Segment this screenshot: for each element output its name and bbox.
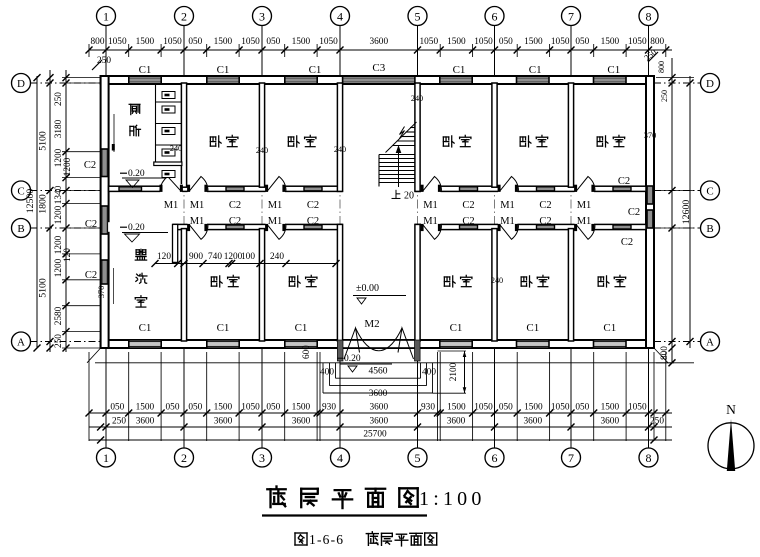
svg-text:050: 050 [266,37,280,47]
svg-text:C2: C2 [628,207,640,218]
svg-text:C2: C2 [85,270,97,281]
svg-text:1500: 1500 [601,403,620,413]
svg-text:1500: 1500 [447,403,466,413]
svg-text:1050: 1050 [628,403,647,413]
svg-text:5: 5 [415,451,421,465]
svg-text:C2: C2 [539,216,551,227]
svg-text:1500: 1500 [292,403,311,413]
svg-text:12500: 12500 [25,189,36,214]
svg-text:1050: 1050 [474,37,493,47]
svg-text:3600: 3600 [524,417,543,427]
svg-text:4: 4 [337,9,343,23]
svg-text:800: 800 [91,37,105,47]
svg-text:240: 240 [334,145,346,154]
svg-text:1-6-6: 1-6-6 [309,532,344,547]
svg-text:4560: 4560 [369,367,388,377]
svg-text:120: 120 [157,252,171,262]
svg-text:930: 930 [421,403,435,413]
svg-text:C1: C1 [453,64,466,76]
svg-text:1500: 1500 [214,37,233,47]
svg-text:240: 240 [270,252,284,262]
svg-text:800: 800 [650,37,664,47]
svg-text:C2: C2 [462,216,474,227]
svg-text:7: 7 [568,9,574,23]
svg-text:050: 050 [188,37,202,47]
svg-text:M1: M1 [164,200,179,211]
svg-text:C2: C2 [462,200,474,211]
svg-text:050: 050 [575,37,589,47]
svg-text:1050: 1050 [551,37,570,47]
svg-text:C2: C2 [229,200,241,211]
svg-text:7: 7 [568,451,574,465]
svg-text:3600: 3600 [369,389,388,399]
svg-text:C2: C2 [539,200,551,211]
svg-text:100: 100 [241,252,255,262]
svg-text:B: B [706,223,713,235]
svg-text:0.20: 0.20 [128,169,145,179]
svg-text:800: 800 [657,61,666,73]
svg-text:1500: 1500 [524,37,543,47]
svg-text:C1: C1 [603,322,616,334]
svg-text:C2: C2 [84,160,96,171]
svg-text:050: 050 [499,403,513,413]
svg-text:050: 050 [266,403,280,413]
svg-text:1050: 1050 [319,37,338,47]
svg-text:D: D [17,78,25,90]
svg-text:3600: 3600 [292,417,311,427]
svg-text:3600: 3600 [214,417,233,427]
svg-text:1050: 1050 [628,37,647,47]
svg-text:1: 1 [103,9,109,23]
svg-text:370: 370 [97,286,106,299]
svg-text:1:100: 1:100 [419,488,486,510]
svg-text:900: 900 [189,252,203,262]
svg-text:C: C [706,186,713,198]
svg-text:8: 8 [646,451,652,465]
svg-text:240: 240 [170,144,182,153]
svg-text:800: 800 [660,346,670,360]
svg-text:3: 3 [259,451,265,465]
svg-text:1500: 1500 [214,403,233,413]
svg-text:240: 240 [411,94,423,103]
svg-text:C1: C1 [309,64,322,76]
svg-text:1: 1 [103,451,109,465]
svg-text:8: 8 [646,9,652,23]
svg-text:1200: 1200 [54,205,64,224]
svg-text:M1: M1 [577,216,592,227]
svg-text:M1: M1 [190,216,205,227]
svg-text:250: 250 [112,417,126,427]
svg-text:M1: M1 [500,216,515,227]
svg-text:C2: C2 [229,216,241,227]
svg-text:M1: M1 [500,200,515,211]
svg-text:4: 4 [337,451,343,465]
svg-text:3: 3 [259,9,265,23]
svg-text:C1: C1 [529,64,542,76]
svg-text:1500: 1500 [136,403,155,413]
svg-text:20: 20 [404,191,414,202]
svg-text:12600: 12600 [681,200,692,225]
svg-text:B: B [17,223,24,235]
svg-text:050: 050 [188,403,202,413]
svg-text:600: 600 [302,345,312,359]
svg-text:120: 120 [63,248,73,262]
svg-text:370: 370 [644,131,657,140]
svg-text:5: 5 [415,9,421,23]
svg-text:1050: 1050 [241,403,260,413]
svg-text:050: 050 [499,37,513,47]
svg-text:050: 050 [110,403,124,413]
svg-text:250: 250 [54,92,64,106]
svg-text:400: 400 [422,368,436,378]
svg-text:3600: 3600 [601,417,620,427]
svg-text:240: 240 [256,146,268,155]
svg-text:1340: 1340 [54,185,64,204]
svg-text:M1: M1 [268,200,283,211]
svg-text:1050: 1050 [163,37,182,47]
svg-text:3600: 3600 [136,417,155,427]
svg-text:A: A [706,337,714,349]
svg-text:1050: 1050 [108,37,127,47]
svg-text:1200: 1200 [224,252,243,262]
svg-text:050: 050 [166,403,180,413]
svg-text:M1: M1 [423,216,438,227]
svg-text:M1: M1 [577,200,592,211]
svg-text:C1: C1 [139,322,152,334]
svg-text:6: 6 [492,9,498,23]
svg-text:930: 930 [322,403,336,413]
svg-text:C1: C1 [217,64,230,76]
svg-text:3180: 3180 [54,119,64,138]
svg-text:1050: 1050 [551,403,570,413]
svg-text:M2: M2 [364,318,379,330]
svg-text:25700: 25700 [363,430,387,440]
svg-text:050: 050 [575,403,589,413]
svg-text:C1: C1 [295,322,308,334]
svg-text:1500: 1500 [601,37,620,47]
svg-text:C3: C3 [372,62,385,74]
svg-text:N: N [726,402,736,417]
svg-text:6: 6 [492,451,498,465]
svg-text:C1: C1 [217,322,230,334]
svg-text:1050: 1050 [420,37,439,47]
svg-text:C: C [17,186,24,198]
svg-text:3600: 3600 [370,403,389,413]
svg-text:3600: 3600 [370,37,389,47]
svg-text:±0.00: ±0.00 [356,283,379,294]
svg-text:1200: 1200 [63,157,73,176]
svg-text:3600: 3600 [370,417,389,427]
svg-text:250: 250 [97,56,111,66]
svg-text:250: 250 [54,334,64,348]
svg-text:C1: C1 [450,322,463,334]
svg-text:1500: 1500 [292,37,311,47]
svg-text:1500: 1500 [524,403,543,413]
svg-text:2: 2 [181,9,187,23]
svg-text:2580: 2580 [54,306,64,325]
svg-text:1050: 1050 [474,403,493,413]
svg-text:C2: C2 [621,237,633,248]
svg-text:D: D [706,78,714,90]
svg-text:240: 240 [491,276,503,285]
svg-text:5100: 5100 [38,131,49,151]
svg-text:1500: 1500 [136,37,155,47]
svg-text:400: 400 [320,368,334,378]
svg-text:C1: C1 [139,64,152,76]
svg-text:A: A [17,337,25,349]
svg-text:C2: C2 [307,216,319,227]
svg-text:0.20: 0.20 [128,223,145,233]
svg-text:M1: M1 [268,216,283,227]
svg-text:M1: M1 [423,200,438,211]
svg-text:C1: C1 [526,322,539,334]
svg-text:2: 2 [181,451,187,465]
svg-text:740: 740 [208,252,222,262]
svg-text:250: 250 [650,417,664,427]
svg-text:5100: 5100 [38,278,49,298]
svg-text:3600: 3600 [447,417,466,427]
svg-text:1050: 1050 [241,37,260,47]
svg-text:250: 250 [660,90,669,102]
svg-text:1800: 1800 [38,194,49,214]
svg-text:M1: M1 [190,200,205,211]
svg-text:C1: C1 [607,64,620,76]
svg-text:C2: C2 [618,176,630,187]
svg-text:C2: C2 [307,200,319,211]
svg-text:1500: 1500 [447,37,466,47]
svg-text:2100: 2100 [449,362,459,381]
